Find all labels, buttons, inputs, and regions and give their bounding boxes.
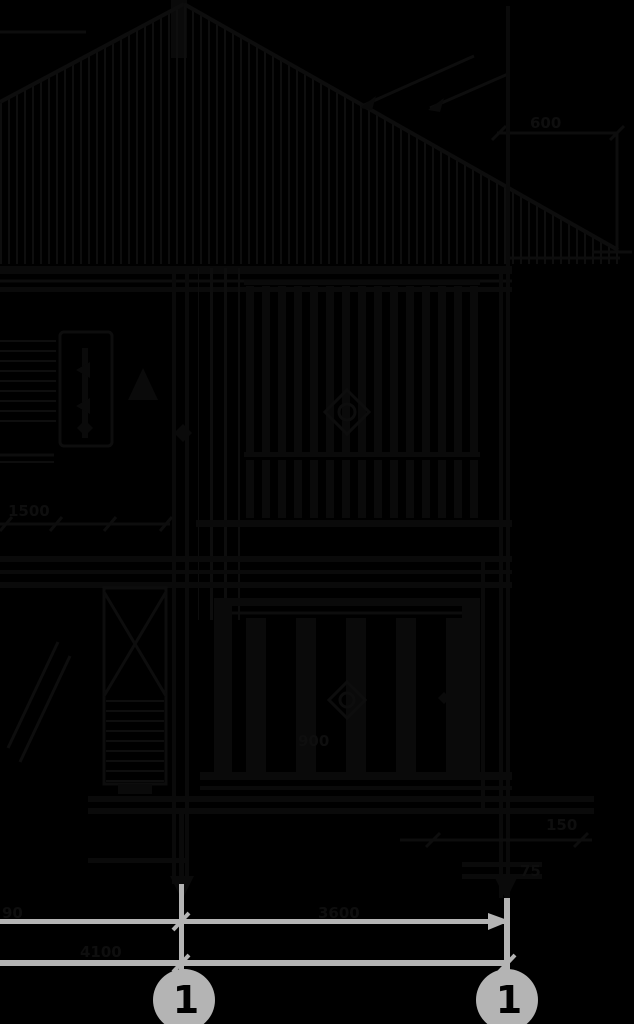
window-wall-group [0,268,512,620]
section-drawing-canvas: 90 3600 4100 600 1500 150 75 900 1 1 [0,0,634,1024]
axis-bubble-left-label: 1 [173,978,199,1022]
slope-leader-line-1 [362,56,474,106]
floor-line-top [0,556,512,562]
railing-bottom-rail [200,772,512,780]
lower-level-group [8,560,512,810]
slab-line-top [88,796,594,802]
left-extension-dark [179,812,184,884]
roof-group [0,0,620,292]
window-row2-bars [246,460,478,518]
right-inner-wall-line [481,560,485,810]
pier-hatch-block [198,268,240,620]
light-dimension-group [0,884,515,976]
eave-soffit-band [0,287,512,292]
roof-batten-hatch [0,6,618,264]
floor-line-bottom [0,582,512,588]
window-row1-bars [246,286,478,452]
base-slab-group [88,796,594,900]
floor-band-group [0,556,512,588]
railing-balusters [214,606,480,774]
light-leader-left [179,884,184,976]
axis-bubbles-group: 1 1 [153,969,538,1024]
dim-text-right-lower: 75 [520,862,541,880]
railing-top-rail [214,598,480,606]
section-arrow-right [494,876,518,900]
light-leader-right [504,898,510,976]
light-dim-line-upper [0,919,504,924]
dim-text-right-upper: 150 [546,816,577,834]
dim-text-railing: 900 [298,732,329,750]
slab-line-bottom [88,808,594,814]
pole-diamond-marker [174,424,192,442]
floor-line-mid [0,570,512,574]
left-wall-hatch-panel [0,334,56,426]
railing-bottom-rail-2 [200,786,512,790]
left-wall-edge-inner [185,268,189,884]
column-footing [118,784,152,794]
window-transom-rail [244,452,480,457]
dim-text-top-right: 600 [530,114,561,132]
window-head-rail [244,280,480,285]
small-window-diamond [77,420,93,436]
column-base-hatch [106,698,164,782]
eave-fascia-band [0,266,512,274]
drawing-svg: 90 3600 4100 600 1500 150 75 900 1 1 [0,0,634,1024]
window-sill-band [196,520,512,527]
axis-bubble-right-label: 1 [496,978,522,1022]
light-dim-line-lower [0,960,508,966]
slope-leader-arrowhead-2 [428,98,444,112]
left-base-line [88,858,188,863]
dim-text-mid-left: 1500 [8,502,50,520]
right-wall-extension-line [506,6,510,898]
left-wall-edge-outer [172,268,176,884]
dim-text-bottom-lower: 4100 [80,943,122,961]
level-marker-triangle [128,368,158,400]
